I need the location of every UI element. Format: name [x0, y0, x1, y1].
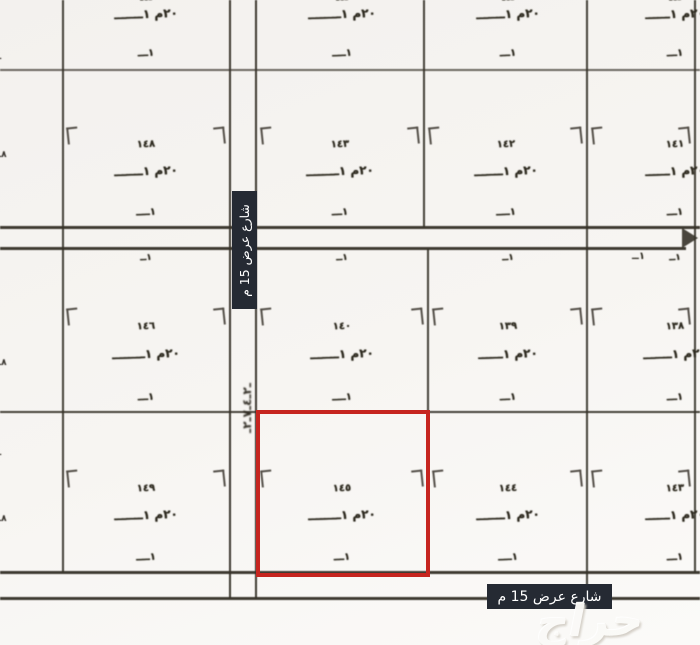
cadastral-plot-map: ـ٤ـ ٢٠م ١ـــــــ ١ـــ ـ٤ـ ٢٠م ١ــــــــ … — [0, 0, 700, 645]
haraj-watermark: حراج — [533, 595, 649, 645]
overlay-layer: شارع عرض 15 م شارع عرض 15 م حراج — [0, 0, 700, 645]
vertical-street-label: شارع عرض 15 م — [232, 191, 257, 309]
highlighted-parcel-outline — [256, 410, 430, 577]
